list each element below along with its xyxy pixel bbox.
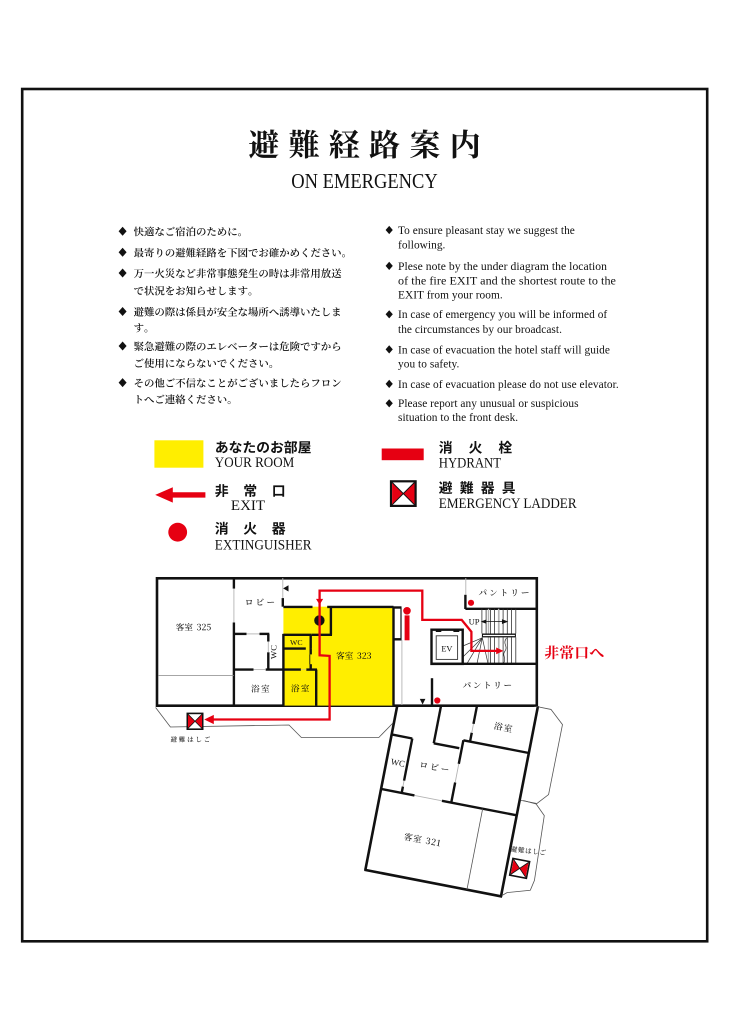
svg-text:Please report any unusual or s: Please report any unusual or suspicious [398, 398, 579, 410]
svg-text:In case of evacuation the hote: In case of evacuation the hotel staff wi… [398, 344, 610, 356]
svg-text:WC: WC [269, 645, 279, 659]
svg-text:situation to the front desk.: situation to the front desk. [398, 412, 518, 424]
svg-text:of the fire EXIT and the short: of the fire EXIT and the shortest route … [398, 276, 616, 288]
svg-text:the circumstances by our broad: the circumstances by our broadcast. [398, 324, 562, 336]
svg-text:EV: EV [441, 645, 452, 654]
svg-text:EMERGENCY LADDER: EMERGENCY LADDER [439, 496, 577, 512]
svg-text:YOUR ROOM: YOUR ROOM [215, 455, 294, 471]
svg-text:you to safety.: you to safety. [398, 359, 460, 371]
svg-text:To ensure pleasant stay we sug: To ensure pleasant stay we suggest the [398, 225, 575, 237]
svg-text:WC: WC [290, 638, 303, 647]
svg-text:ON EMERGENCY: ON EMERGENCY [291, 169, 438, 193]
svg-text:EXTINGUISHER: EXTINGUISHER [215, 538, 312, 554]
svg-text:HYDRANT: HYDRANT [439, 456, 501, 472]
svg-text:following.: following. [398, 240, 446, 252]
svg-text:EXIT: EXIT [231, 498, 265, 514]
svg-text:WC: WC [390, 756, 406, 769]
svg-text:UP: UP [469, 617, 480, 627]
svg-text:Plese note by the under diagra: Plese note by the under diagram the loca… [398, 261, 607, 273]
svg-text:EXIT from your room.: EXIT from your room. [398, 289, 503, 301]
svg-text:In case of evacuation please d: In case of evacuation please do not use … [398, 379, 619, 391]
svg-text:In case of emergency you will: In case of emergency you will be informe… [398, 309, 607, 321]
